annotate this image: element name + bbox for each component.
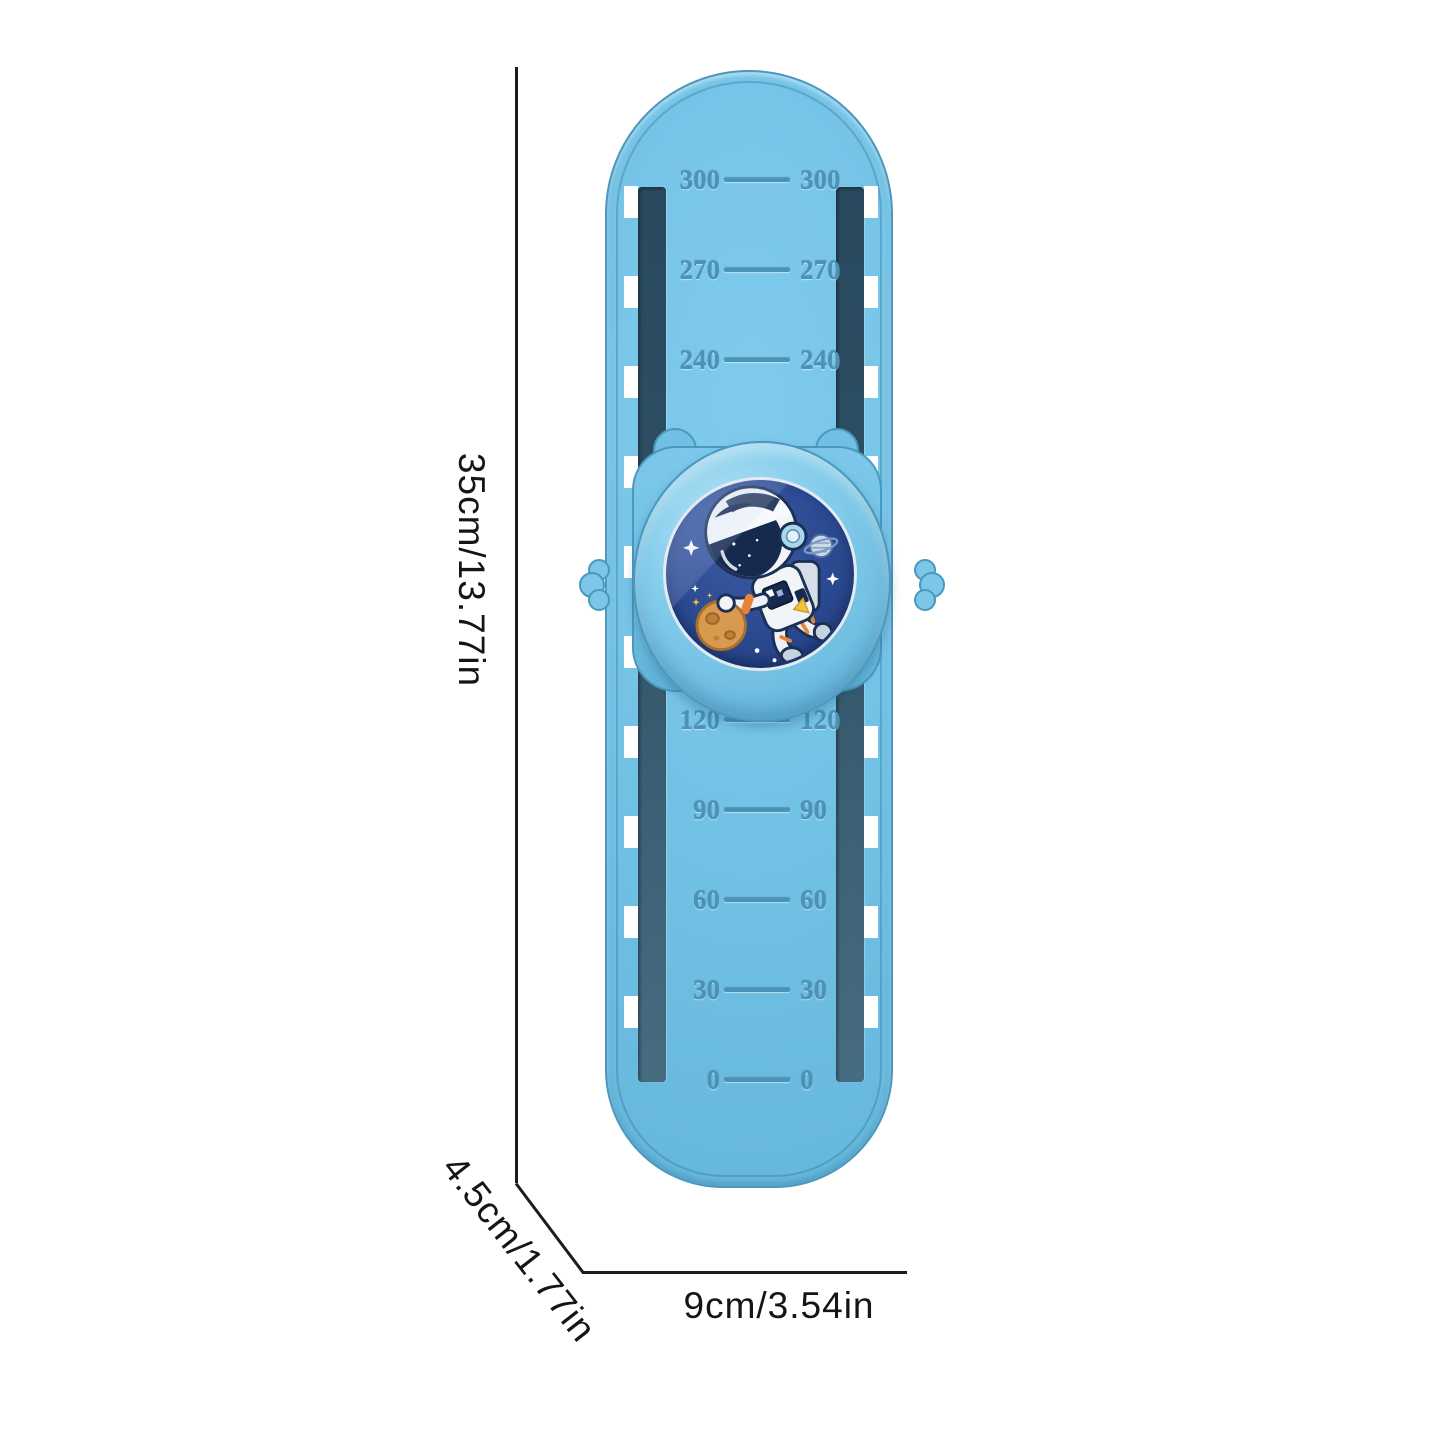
knob-wing-right-lobe	[914, 589, 936, 611]
scale-tick	[724, 268, 790, 272]
scale-value-right: 60	[800, 882, 862, 918]
scale-value-left: 0	[658, 1062, 720, 1098]
scale-value-right: 90	[800, 792, 862, 828]
scale-tick	[724, 808, 790, 812]
scale-value-right: 30	[800, 972, 862, 1008]
scale-row-300: 300300	[607, 162, 895, 198]
scale-tick	[724, 988, 790, 992]
scale-row-0: 00	[607, 1062, 895, 1098]
depth-dimension-label: 4.5cm/1.77in	[422, 1133, 617, 1365]
scale-row-60: 6060	[607, 882, 895, 918]
scale-value-right: 300	[800, 162, 862, 198]
astronaut-icon	[666, 480, 854, 668]
width-dimension-line	[582, 1271, 907, 1274]
scale-value-right: 270	[800, 252, 862, 288]
scale-row-270: 270270	[607, 252, 895, 288]
scale-value-left: 240	[658, 342, 720, 378]
scale-tick	[724, 898, 790, 902]
scale-row-30: 3030	[607, 972, 895, 1008]
width-dimension-label: 9cm/3.54in	[649, 1284, 909, 1328]
scale-value-right: 240	[800, 342, 862, 378]
astronaut-earpiece	[780, 523, 806, 549]
height-dimension-label: 35cm/13.77in	[449, 440, 493, 700]
product-dimension-diagram: 35cm/13.77in 4.5cm/1.77in 9cm/3.54in 300…	[0, 0, 1445, 1445]
scale-value-left: 60	[658, 882, 720, 918]
knob-glass	[663, 477, 857, 671]
knob-wing-left-lobe	[588, 589, 610, 611]
scale-value-left: 300	[658, 162, 720, 198]
scale-value-left: 90	[658, 792, 720, 828]
astronaut-glove	[718, 595, 734, 611]
scale-tick	[724, 178, 790, 182]
scale-row-240: 240240	[607, 342, 895, 378]
scale-tick	[724, 358, 790, 362]
scale-row-90: 9090	[607, 792, 895, 828]
scale-value-right: 0	[800, 1062, 862, 1098]
scale-value-left: 270	[658, 252, 720, 288]
scale-tick	[724, 1078, 790, 1082]
saturn-icon	[803, 535, 839, 557]
height-dimension-line	[515, 67, 518, 1183]
scale-value-left: 30	[658, 972, 720, 1008]
